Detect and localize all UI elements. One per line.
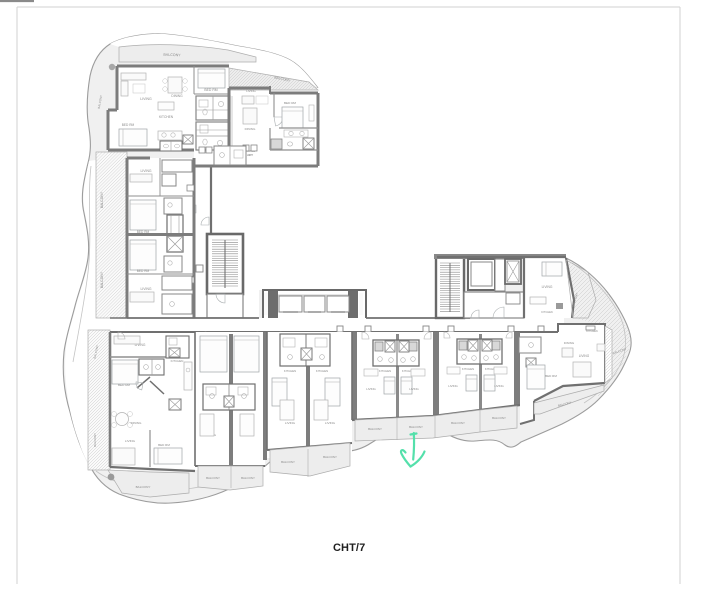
svg-text:LIVING: LIVING: [125, 439, 136, 443]
svg-text:BALCONY: BALCONY: [93, 433, 97, 447]
svg-text:LIVING: LIVING: [579, 354, 590, 358]
svg-text:BALCONY: BALCONY: [492, 416, 506, 420]
svg-text:BED RM: BED RM: [284, 101, 296, 105]
svg-text:BALCONY: BALCONY: [100, 271, 104, 288]
svg-text:BALCONY: BALCONY: [241, 476, 255, 480]
svg-text:LIVING: LIVING: [285, 421, 296, 425]
svg-text:LIVING: LIVING: [494, 384, 504, 388]
svg-text:KITCHEN: KITCHEN: [462, 367, 474, 371]
svg-text:LIVING: LIVING: [409, 387, 419, 391]
svg-text:DINING: DINING: [245, 127, 256, 131]
svg-text:BALCONY: BALCONY: [409, 425, 423, 429]
svg-text:BED RM: BED RM: [137, 269, 150, 273]
svg-text:LIVING: LIVING: [140, 97, 152, 101]
svg-text:KITCHEN: KITCHEN: [159, 115, 174, 119]
svg-text:BALCONY: BALCONY: [368, 427, 382, 431]
svg-text:LIVING: LIVING: [246, 89, 256, 93]
svg-text:CHT/7: CHT/7: [333, 542, 365, 554]
svg-text:KITCHEN: KITCHEN: [379, 369, 391, 373]
svg-text:LIVING: LIVING: [448, 384, 458, 388]
svg-text:DINING: DINING: [564, 341, 575, 345]
svg-text:BALCONY: BALCONY: [100, 191, 104, 208]
svg-text:KITCHEN: KITCHEN: [586, 329, 598, 333]
svg-text:LIVING: LIVING: [325, 421, 336, 425]
svg-text:BALCONY: BALCONY: [323, 455, 337, 459]
svg-text:KITCHEN: KITCHEN: [284, 369, 296, 373]
svg-text:BALCONY: BALCONY: [451, 421, 465, 425]
svg-text:LIVING: LIVING: [140, 169, 151, 173]
svg-text:BED RM: BED RM: [122, 123, 135, 127]
svg-text:KITCHEN: KITCHEN: [316, 369, 328, 373]
svg-text:BALCONY: BALCONY: [281, 460, 295, 464]
svg-text:BED RM: BED RM: [158, 443, 170, 447]
svg-text:LIFT: LIFT: [247, 153, 253, 157]
svg-text:DINING: DINING: [131, 421, 142, 425]
svg-text:KITCHEN: KITCHEN: [541, 310, 553, 314]
svg-text:BALCONY: BALCONY: [163, 53, 181, 58]
svg-text:KITCHEN: KITCHEN: [171, 359, 184, 363]
svg-text:DINING: DINING: [171, 94, 183, 98]
svg-text:LIVING: LIVING: [140, 287, 151, 291]
svg-text:LIVING: LIVING: [542, 285, 553, 289]
svg-text:LIVING: LIVING: [366, 387, 376, 391]
svg-text:BALCONY: BALCONY: [206, 476, 220, 480]
svg-text:BED RM: BED RM: [545, 374, 557, 378]
svg-text:BALCONY: BALCONY: [136, 485, 151, 489]
svg-text:BED RM: BED RM: [204, 88, 217, 92]
